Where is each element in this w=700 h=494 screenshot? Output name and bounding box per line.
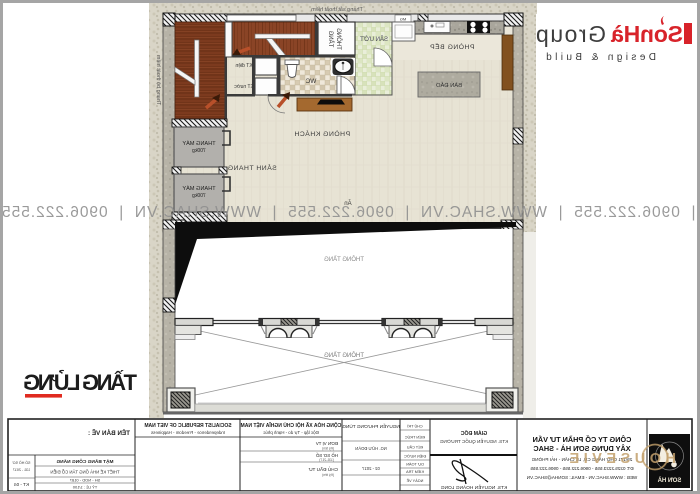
svg-text:WEB : WWW.SHAC.VN - EMAIL: SON: WEB : WWW.SHAC.VN - EMAIL: SONHA@SHAC.VN bbox=[527, 475, 638, 480]
svg-text:KT - 04: KT - 04 bbox=[14, 482, 29, 487]
svg-text:MG: MG bbox=[400, 16, 406, 21]
svg-text:BÀN ĐẢO: BÀN ĐẢO bbox=[435, 82, 462, 89]
svg-text:KTS. NGUYỄN QUỐC TRƯỜNG: KTS. NGUYỄN QUỐC TRƯỜNG bbox=[439, 438, 508, 444]
svg-text:KT nước: KT nước bbox=[234, 84, 254, 90]
svg-text:TỶ LỆ : 1/100: TỶ LỆ : 1/100 bbox=[72, 485, 97, 490]
svg-text:C.VN | 0906.222.555 | WWW.: C.VN | 0906.222.555 | WWW.SHAC.VN | 0906… bbox=[2, 204, 700, 221]
svg-text:NGUYỄN PHƯƠNG TÙNG: NGUYỄN PHƯƠNG TÙNG bbox=[342, 423, 400, 429]
svg-text:700kg: 700kg bbox=[192, 148, 206, 154]
svg-text:Thang bộ thoát hiểm: Thang bộ thoát hiểm bbox=[155, 54, 162, 105]
svg-text:ĐƠN VỊ TV: ĐƠN VỊ TV bbox=[316, 441, 338, 446]
svg-text:02 - 2017: 02 - 2017 bbox=[361, 466, 379, 471]
svg-text:ĐIỆN NƯỚC: ĐIỆN NƯỚC bbox=[404, 454, 426, 459]
svg-text:PHÒNG KHÁCH: PHÒNG KHÁCH bbox=[294, 129, 350, 138]
svg-text:THIẾT KẾ NHÀ ỐNG TÂN CỔ ĐIỂN: THIẾT KẾ NHÀ ỐNG TÂN CỔ ĐIỂN bbox=[50, 470, 119, 475]
svg-text:CHỦ ĐẦU TƯ: CHỦ ĐẦU TƯ bbox=[309, 466, 338, 472]
svg-text:SOCIALIST REPUBLIC OF VIET NAM: SOCIALIST REPUBLIC OF VIET NAM bbox=[144, 423, 231, 429]
svg-text:KẾT CẤU: KẾT CẤU bbox=[407, 445, 424, 450]
svg-text:KIỂM TRA: KIỂM TRA bbox=[406, 469, 424, 474]
svg-text:CÔNG TY CỔ PHẦN TƯ VẤN: CÔNG TY CỔ PHẦN TƯ VẤN bbox=[533, 434, 632, 444]
svg-text:TẦNG LỬNG: TẦNG LỬNG bbox=[23, 370, 137, 395]
svg-text:KIẾN TRÚC: KIẾN TRÚC bbox=[405, 435, 426, 440]
svg-text:KT điện: KT điện bbox=[235, 63, 252, 69]
svg-text:TÊN BẢN VẼ :: TÊN BẢN VẼ : bbox=[88, 428, 130, 437]
svg-text:KTS. NGUYỄN HOÀNG LONG: KTS. NGUYỄN HOÀNG LONG bbox=[441, 484, 508, 491]
svg-text:THÔNG TẦNG: THÔNG TẦNG bbox=[324, 256, 364, 263]
svg-text:(Ký tên): (Ký tên) bbox=[322, 447, 334, 451]
svg-text:NG. HỮU ĐOÀN: NG. HỮU ĐOÀN bbox=[355, 446, 387, 451]
svg-text:NGÀY VẼ: NGÀY VẼ bbox=[406, 478, 423, 483]
svg-text:SH - NOD - 0187: SH - NOD - 0187 bbox=[69, 478, 100, 483]
svg-text:SÂN ƯỚT: SÂN ƯỚT bbox=[360, 36, 388, 43]
svg-text:WC: WC bbox=[305, 78, 316, 85]
svg-text:SƠN HÀ: SƠN HÀ bbox=[657, 477, 681, 484]
svg-text:SỐ HỒ SƠ: SỐ HỒ SƠ bbox=[12, 460, 30, 465]
svg-text:SẢNH THANG: SẢNH THANG bbox=[227, 163, 276, 172]
svg-text:DỰ TOÁN: DỰ TOÁN bbox=[406, 463, 424, 467]
svg-text:THÔNG: THÔNG bbox=[335, 28, 342, 50]
svg-text:(131-217): (131-217) bbox=[319, 458, 334, 462]
svg-text:Independence - Freedom - Happi: Independence - Freedom - Happiness bbox=[150, 430, 225, 435]
svg-text:SonHà: SonHà bbox=[611, 21, 683, 47]
svg-text:Độc lập - Tự do - Hạnh phúc: Độc lập - Tự do - Hạnh phúc bbox=[262, 430, 318, 435]
svg-text:TẦNG: TẦNG bbox=[327, 30, 334, 47]
svg-text:THANG MÁY: THANG MÁY bbox=[182, 140, 216, 147]
svg-text:(Ký tên): (Ký tên) bbox=[322, 473, 334, 477]
svg-text:Design & Build: Design & Build bbox=[543, 52, 656, 63]
svg-text:Group: Group bbox=[536, 21, 606, 47]
svg-text:Thang sắt thoát hiểm: Thang sắt thoát hiểm bbox=[311, 6, 363, 13]
svg-text:CỘNG HÒA XÃ HỘI CHỦ NGHĨA VIỆT: CỘNG HÒA XÃ HỘI CHỦ NGHĨA VIỆT NAM bbox=[241, 421, 342, 429]
svg-text:CHỦ TRÌ: CHỦ TRÌ bbox=[407, 424, 422, 429]
svg-text:700kg: 700kg bbox=[192, 193, 206, 199]
svg-text:THÔNG TẦNG: THÔNG TẦNG bbox=[324, 352, 364, 359]
svg-text:THANG MÁY: THANG MÁY bbox=[182, 185, 216, 192]
svg-text:HOUSEVIE: HOUSEVIE bbox=[565, 451, 676, 467]
svg-text:GIÁM ĐỐC: GIÁM ĐỐC bbox=[460, 430, 487, 437]
svg-text:131 - 2017: 131 - 2017 bbox=[13, 468, 30, 472]
